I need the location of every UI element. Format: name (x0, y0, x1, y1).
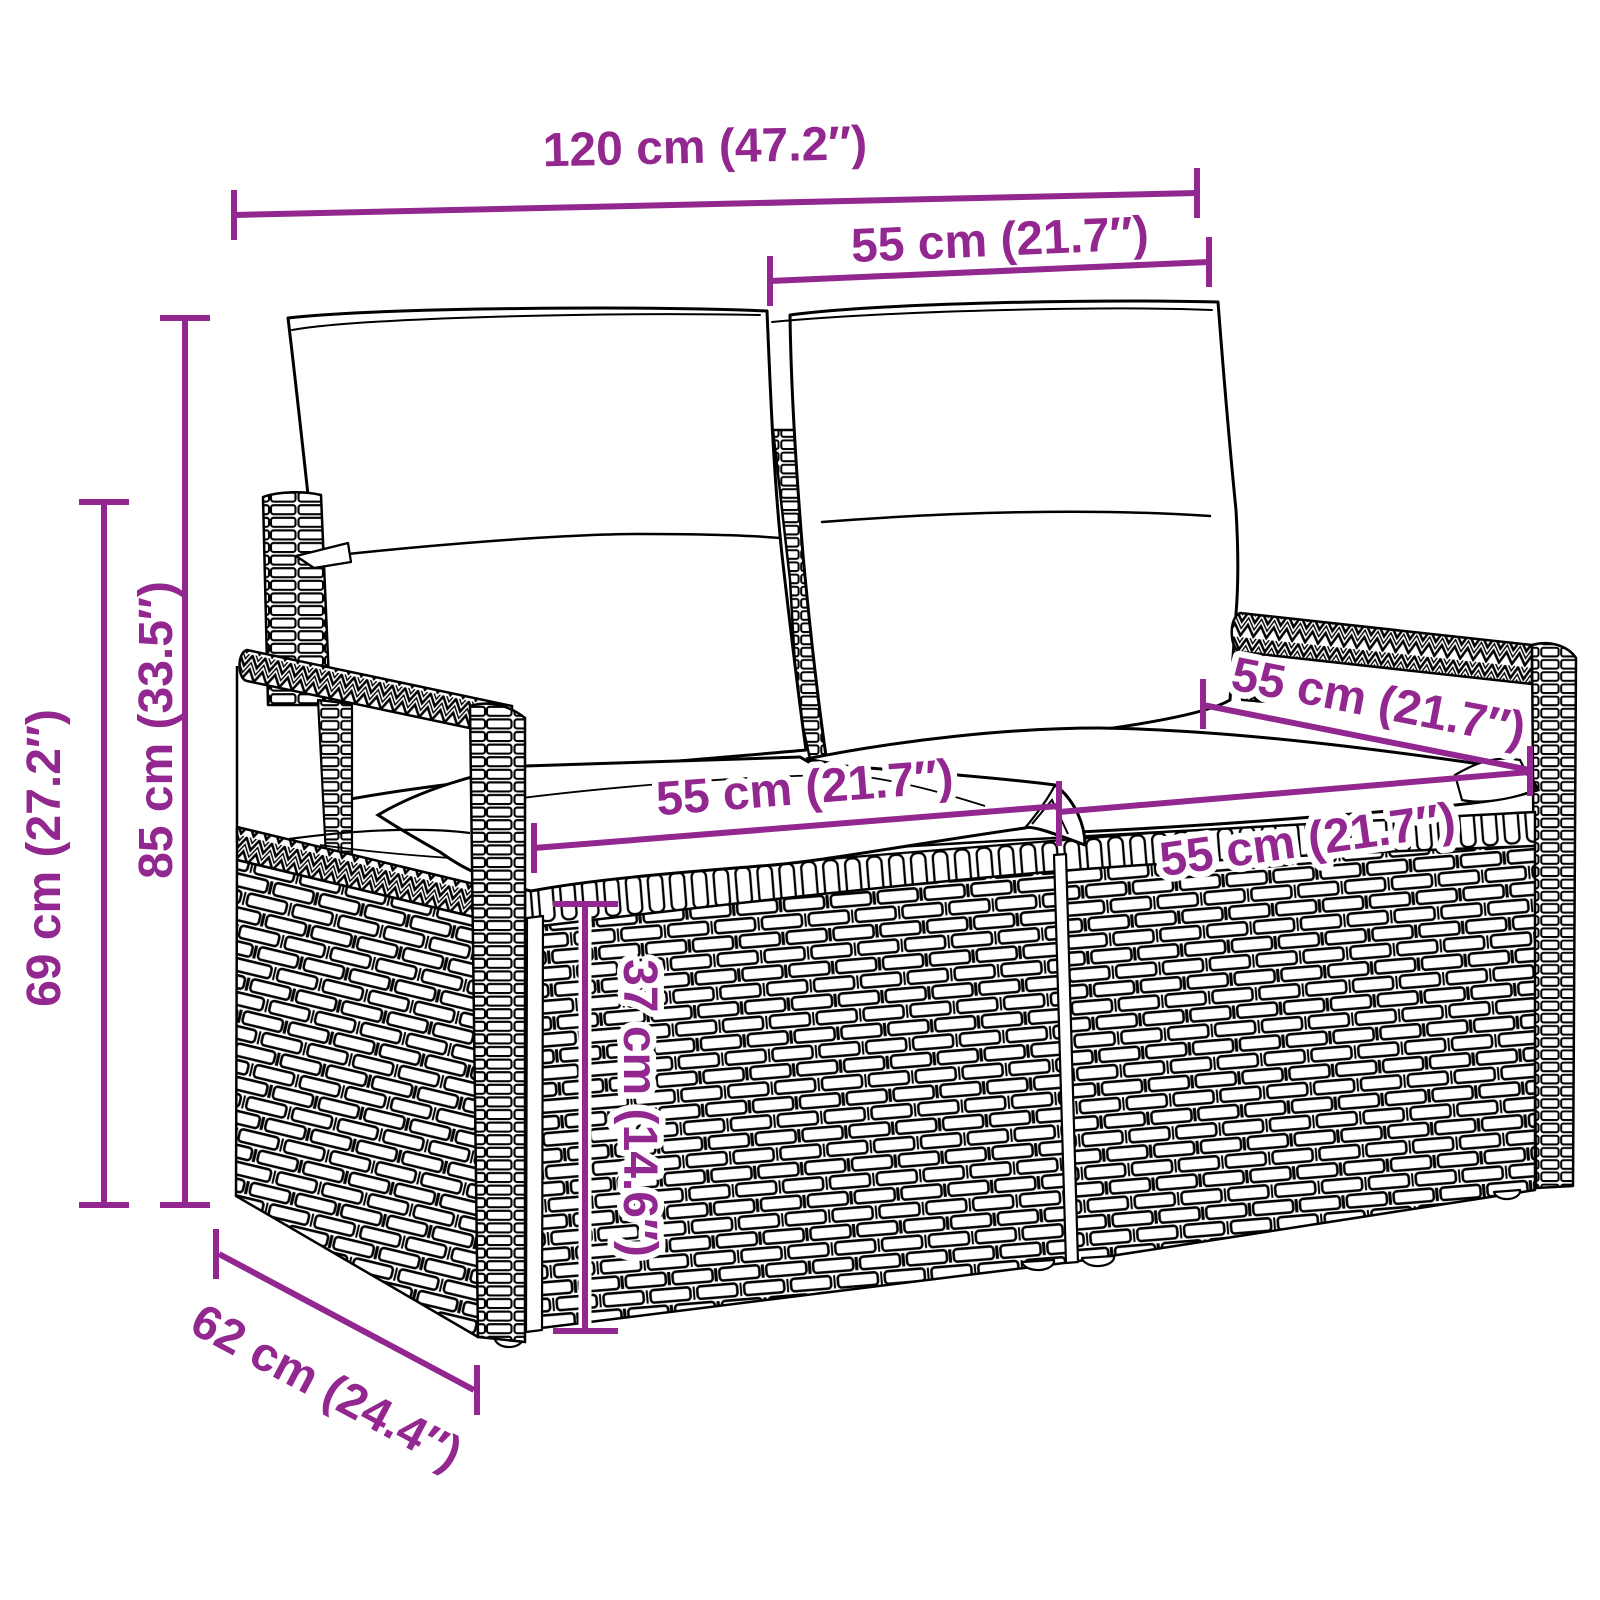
svg-text:69 cm (27.2″): 69 cm (27.2″) (18, 709, 71, 1007)
svg-text:85 cm (33.5″): 85 cm (33.5″) (130, 581, 183, 879)
svg-text:37 cm (14.6″): 37 cm (14.6″) (613, 959, 666, 1257)
svg-text:120 cm (47.2″): 120 cm (47.2″) (542, 117, 868, 177)
